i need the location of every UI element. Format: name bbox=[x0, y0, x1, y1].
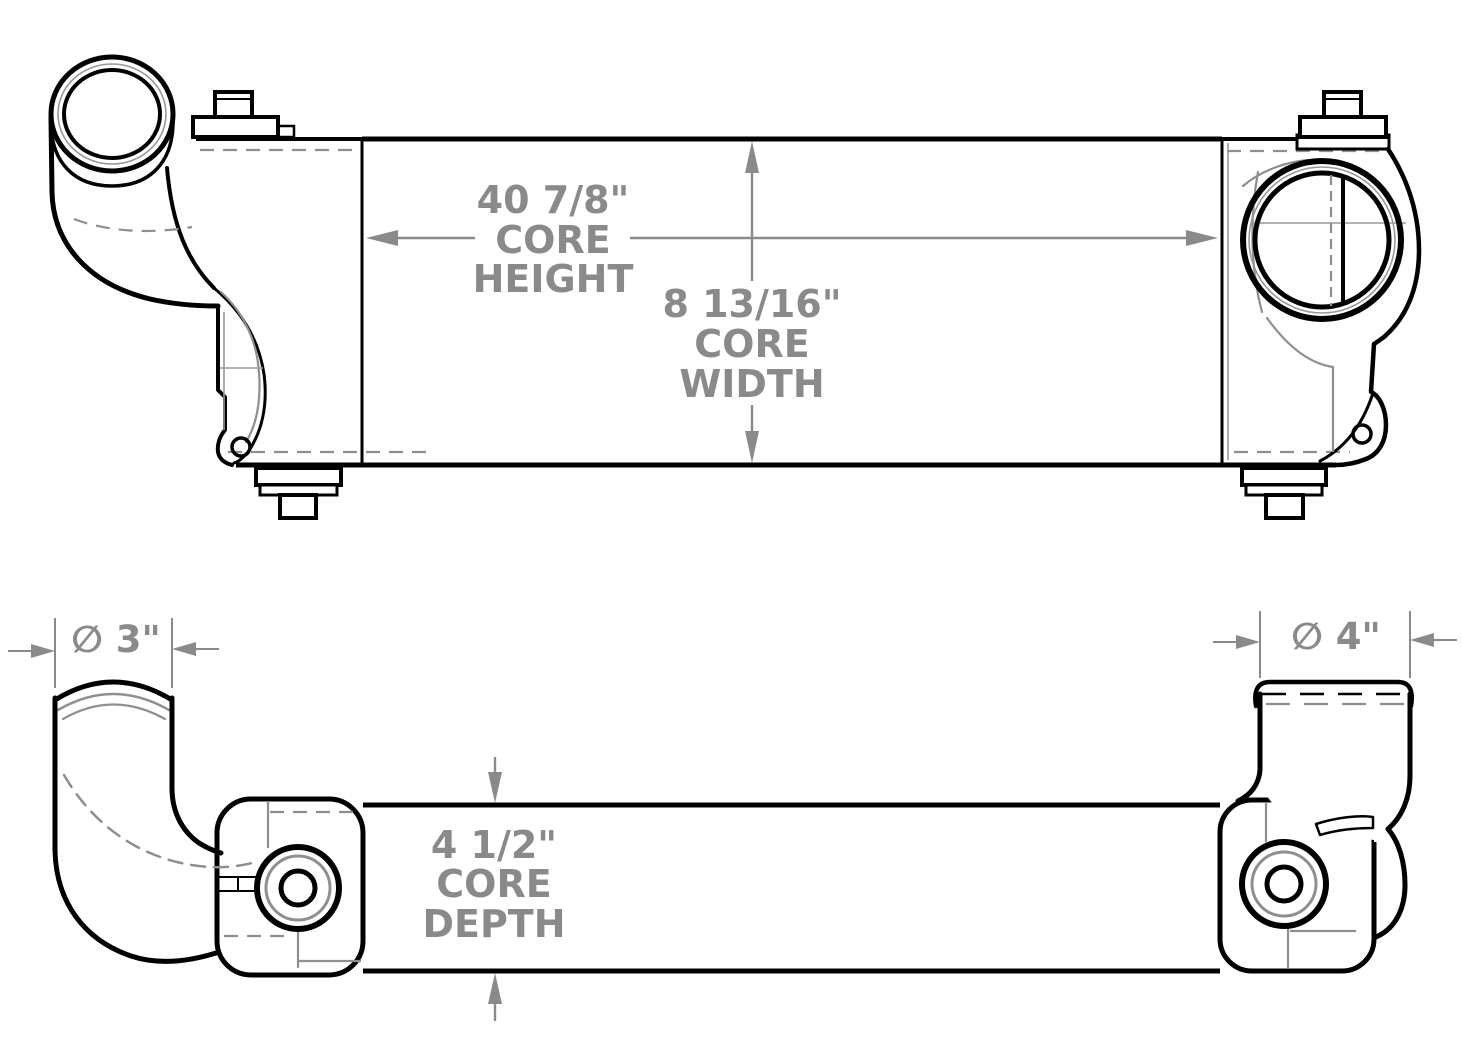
outlet-diameter-value: ∅ 4" bbox=[1291, 615, 1381, 658]
core-width-label-2: WIDTH bbox=[679, 362, 824, 406]
core-depth-value: 4 1/2" bbox=[431, 823, 557, 867]
core-height-label-2: HEIGHT bbox=[473, 257, 634, 301]
technical-drawing-page: 40 7/8" CORE HEIGHT 8 13/16" CORE WIDTH bbox=[0, 0, 1461, 1063]
mounting-bracket bbox=[1300, 117, 1386, 137]
mounting-pin bbox=[1324, 92, 1361, 117]
mounting-pin bbox=[215, 92, 252, 117]
core-depth-label-1: CORE bbox=[436, 862, 551, 906]
inlet-diameter-value: ∅ 3" bbox=[71, 618, 161, 661]
core-height-label-1: CORE bbox=[495, 218, 610, 262]
core-height-value: 40 7/8" bbox=[477, 178, 630, 222]
core-width-label-1: CORE bbox=[694, 322, 809, 366]
core-depth-label-2: DEPTH bbox=[422, 902, 565, 946]
mounting-bracket bbox=[193, 117, 278, 137]
pin-base bbox=[1242, 468, 1326, 485]
mounting-pin bbox=[280, 495, 316, 518]
pin-base bbox=[256, 468, 341, 485]
charge-air-cooler-drawing: 40 7/8" CORE HEIGHT 8 13/16" CORE WIDTH bbox=[0, 0, 1461, 1063]
mounting-pin bbox=[1266, 495, 1303, 518]
core-width-value: 8 13/16" bbox=[662, 282, 841, 326]
